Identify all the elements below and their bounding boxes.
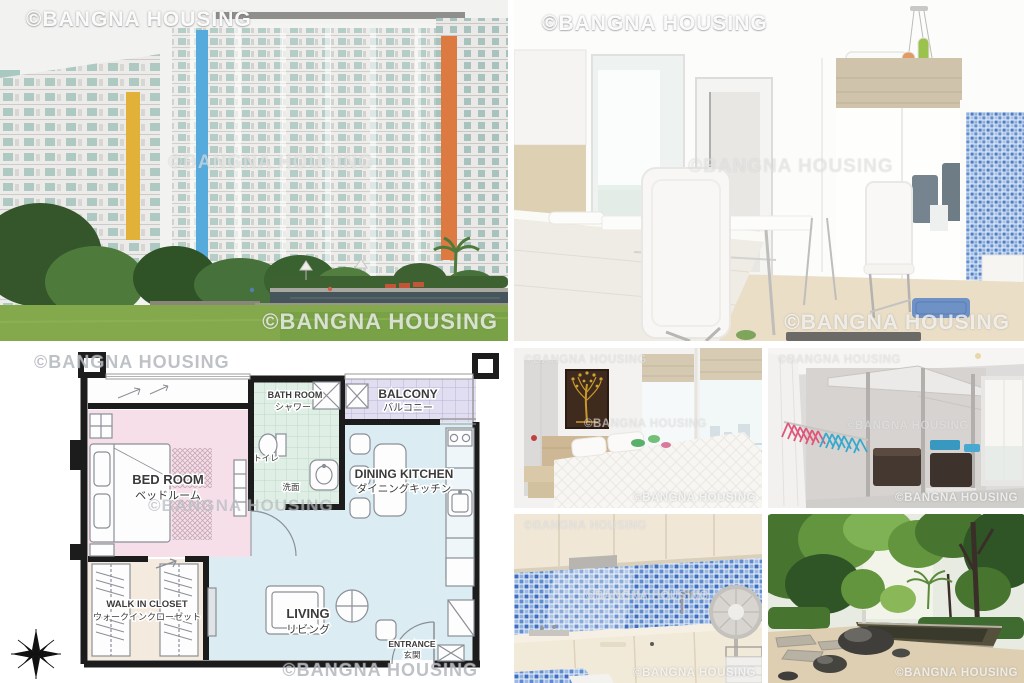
entrance-label-ja: 玄関 (403, 650, 420, 660)
green-object (736, 330, 756, 340)
nightstand-step (528, 482, 558, 498)
ceiling-light (975, 353, 981, 359)
fridge-symbol (446, 558, 474, 586)
kitchen-photo: ©BANGNA HOUSING ©BANGNA HOUSING ©BANGNA … (514, 514, 762, 683)
blue-mat (912, 298, 970, 318)
white-chair-front (642, 168, 730, 341)
walk-in-closet-label-ja: ウォークインクローゼット (93, 611, 201, 622)
living-label-en: LIVING (286, 606, 329, 621)
tree-artwork (566, 370, 608, 428)
roman-shade (642, 354, 694, 382)
building-exterior-graphic (0, 0, 508, 341)
bedroom-label-ja: ベッドルーム (135, 489, 201, 502)
dining-kitchen-label-en: DINING KITCHEN (355, 467, 454, 481)
light-sheen (544, 566, 634, 634)
kitchen-graphic (514, 514, 762, 683)
washstand-label: 洗面 (282, 482, 300, 492)
lawn (0, 301, 508, 341)
dining-kitchen-graphic (514, 0, 1024, 341)
dining-kitchen-photo: ©BANGNA HOUSING ©BANGNA HOUSING ©BANGNA … (514, 0, 1024, 341)
roman-shade (700, 348, 762, 380)
garden-lamp (862, 610, 866, 623)
walk-in-closet-graphic (768, 348, 1024, 508)
stool (350, 498, 370, 518)
toilet-label: トイレ (253, 453, 279, 463)
dark-rug (786, 332, 921, 341)
walk-in-closet-label-en: WALK IN CLOSET (106, 599, 187, 610)
living-label-ja: リビング (286, 622, 330, 636)
bedroom-graphic (514, 348, 762, 508)
garden-photo: ©BANGNA HOUSING (768, 514, 1024, 683)
floor-plan: BED ROOM ベッドルーム BATH ROOM シャワー トイレ 洗面 BA… (0, 348, 508, 683)
chair (376, 620, 396, 640)
garden-graphic (768, 514, 1024, 683)
floor-plan-graphic: BED ROOM ベッドルーム BATH ROOM シャワー トイレ 洗面 BA… (0, 348, 508, 683)
stool (350, 434, 370, 454)
flowers (531, 435, 537, 441)
bathroom-label-ja: シャワー (275, 402, 311, 412)
photo-collage: ©BANGNA HOUSING ©BANGNA HOUSING ©BANGNA … (0, 0, 1024, 683)
walk-in-closet-photo: ©BANGNA HOUSING ©BANGNA HOUSING ©BANGNA … (768, 348, 1024, 508)
dining-kitchen-label-ja: ダイニングキッチン (357, 482, 452, 495)
tv-symbol (208, 588, 216, 636)
balcony-label-en: BALCONY (378, 387, 437, 401)
stove-icon (448, 430, 472, 446)
bedroom-label-en: BED ROOM (132, 472, 204, 487)
nightstand (90, 544, 114, 556)
bathroom-label-en: BATH ROOM (268, 390, 323, 400)
entrance-label-en: ENTRANCE (388, 639, 436, 649)
balcony-label-ja: バルコニー (383, 402, 433, 414)
hedge (768, 607, 830, 629)
bedroom-photo: ©BANGNA HOUSING ©BANGNA HOUSING ©BANGNA … (514, 348, 762, 508)
nightstand-step (524, 466, 554, 482)
rug (172, 500, 212, 540)
building-exterior-photo: ©BANGNA HOUSING ©BANGNA HOUSING ©BANGNA … (0, 0, 508, 341)
window (981, 376, 1024, 486)
